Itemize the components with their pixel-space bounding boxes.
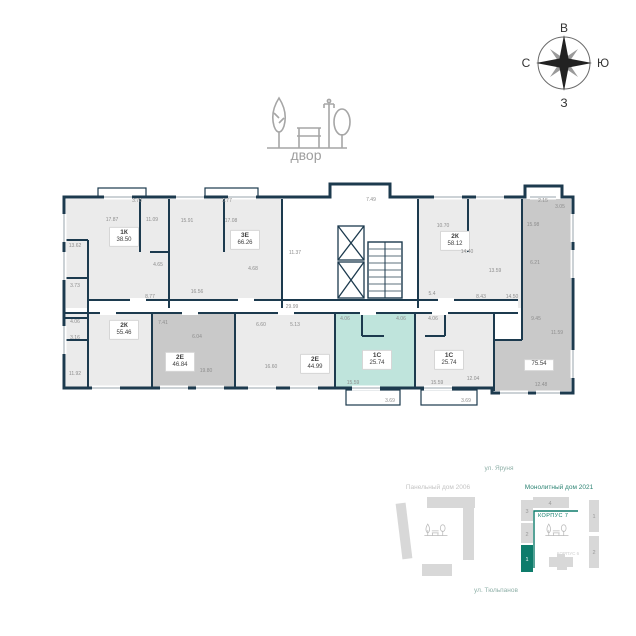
apartment-label-2k-bottom[interactable]: 2К 55.46 — [109, 320, 139, 340]
apartment-type: 1С — [366, 352, 388, 360]
apartment-label-1c-selected[interactable]: 1С 25.74 — [362, 350, 392, 370]
street-top-label: ул. Яруня — [484, 465, 514, 472]
compass-label-right: Ю — [597, 56, 609, 70]
panel-house-label: Панельный дом 2006 — [406, 483, 471, 491]
apartment-type: 3Е — [234, 232, 256, 240]
building-right-2-number: 2 — [592, 550, 595, 556]
apartment-area: 25.74 — [366, 360, 388, 368]
building-strip-1-number: 1 — [525, 557, 528, 563]
apartment-label-2k-top[interactable]: 2К 58.12 — [440, 231, 470, 251]
apartment-label-3e[interactable]: 3Е 66.26 — [230, 230, 260, 250]
apartment-label-2e-mid[interactable]: 2Е 44.99 — [300, 354, 330, 374]
apartment-area: 44.99 — [304, 364, 326, 372]
building-bottom-3 — [549, 554, 573, 570]
apartment-label-2e-sold[interactable]: 2Е 46.84 — [165, 352, 195, 372]
park-icon-left — [424, 524, 447, 536]
building-top-4-number: 4 — [548, 501, 551, 507]
courtyard-icon — [267, 98, 350, 148]
balcony-bottom-right — [421, 390, 477, 405]
monolith-house-label: Монолитный дом 2021 — [525, 483, 594, 491]
apartment-type: 2К — [444, 233, 466, 241]
street-bottom-label: ул. Тюльпанов — [474, 587, 518, 594]
apartment-area: 46.84 — [169, 362, 191, 370]
building-strip-2-number: 2 — [525, 532, 528, 538]
park-icon-right — [545, 524, 568, 536]
apartment-2e-mid[interactable] — [235, 313, 335, 388]
building-right-1-number: 1 — [592, 514, 595, 520]
page-canvas: В С Ю З — [0, 0, 636, 636]
apartment-3e[interactable] — [170, 199, 282, 308]
korpus-7-label: КОРПУС 7 — [538, 513, 568, 519]
elevator-shafts — [338, 226, 364, 298]
site-plan: ул. Яруня Панельный дом 2006 Монолитный … — [396, 465, 599, 594]
apartment-label-1c-right[interactable]: 1С 25.74 — [434, 350, 464, 370]
compass-label-top: В — [560, 21, 568, 35]
apartment-label-75-sold[interactable]: 75.54 — [524, 359, 554, 371]
apartment-area: 66.26 — [234, 240, 256, 248]
apartment-area: 58.12 — [444, 241, 466, 249]
apartment-label-1k[interactable]: 1К 38.50 — [109, 227, 139, 247]
apartment-area: 25.74 — [438, 360, 460, 368]
compass-label-bottom: З — [560, 96, 567, 110]
apartment-type: 2Е — [169, 354, 191, 362]
staircase — [368, 242, 402, 298]
apartment-area: 38.50 — [113, 237, 135, 245]
balcony-bottom-selected — [346, 390, 400, 405]
apartment-1k[interactable] — [66, 199, 168, 308]
compass-rose: В С Ю З — [522, 21, 609, 110]
apartment-type: 1К — [113, 229, 135, 237]
building-strip-3-number: 3 — [525, 509, 528, 515]
apartment-area: 55.46 — [113, 330, 135, 338]
floorplan-page: { "compass": {"top": "В", "right": "Ю", … — [0, 0, 636, 636]
compass-star-cardinal — [536, 35, 592, 91]
apartment-type: 1С — [438, 352, 460, 360]
apartment-2e-sold[interactable] — [152, 313, 235, 388]
apartment-2k-top[interactable] — [418, 199, 521, 308]
apartment-type: 2К — [113, 322, 135, 330]
apartment-area: 75.54 — [528, 361, 550, 369]
panel-house-buildings — [396, 497, 475, 576]
apartment-type: 2Е — [304, 356, 326, 364]
compass-label-left: С — [522, 56, 531, 70]
courtyard-label: двор — [290, 147, 321, 163]
